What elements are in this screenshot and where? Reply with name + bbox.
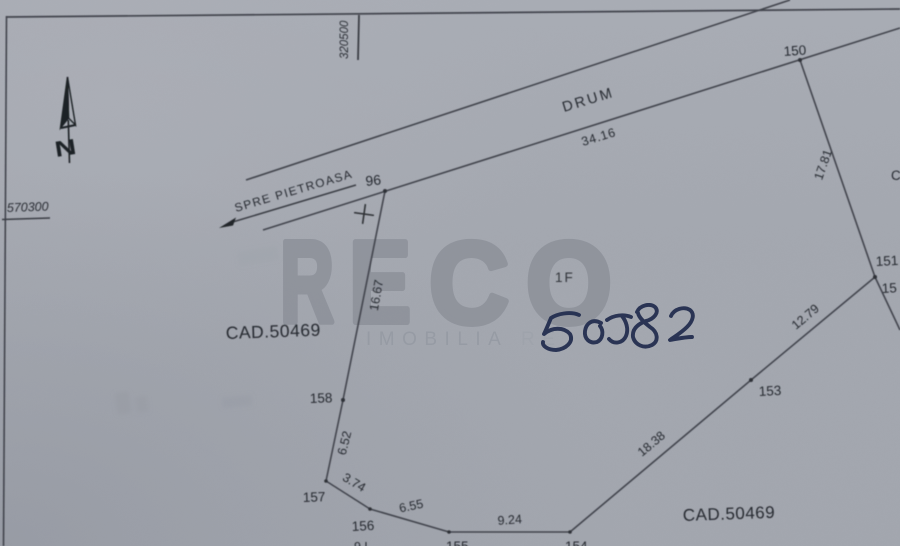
- svg-text:CAD.50469: CAD.50469: [682, 503, 775, 525]
- svg-text:CAD.50469: CAD.50469: [225, 320, 321, 343]
- svg-text:154: 154: [565, 539, 588, 546]
- svg-text:N: N: [53, 134, 78, 162]
- svg-text:IMOBILIA: IMOBILIA: [366, 329, 508, 350]
- svg-text:1F: 1F: [555, 270, 575, 285]
- svg-text:158: 158: [310, 390, 333, 406]
- svg-text:156: 156: [351, 518, 374, 534]
- svg-text:96: 96: [365, 171, 382, 189]
- svg-text:C: C: [891, 168, 900, 183]
- svg-text:320500: 320500: [339, 20, 351, 59]
- svg-text:151: 151: [875, 253, 898, 269]
- svg-text:9.24: 9.24: [497, 512, 522, 528]
- svg-text:9 L: 9 L: [354, 540, 371, 546]
- svg-text:153: 153: [758, 383, 781, 399]
- svg-text:570300: 570300: [7, 200, 49, 215]
- svg-text:150: 150: [783, 42, 807, 59]
- svg-text:15: 15: [881, 280, 897, 296]
- svg-text:155: 155: [446, 539, 469, 546]
- svg-text:RE: RE: [521, 329, 562, 350]
- svg-text:157: 157: [303, 489, 326, 505]
